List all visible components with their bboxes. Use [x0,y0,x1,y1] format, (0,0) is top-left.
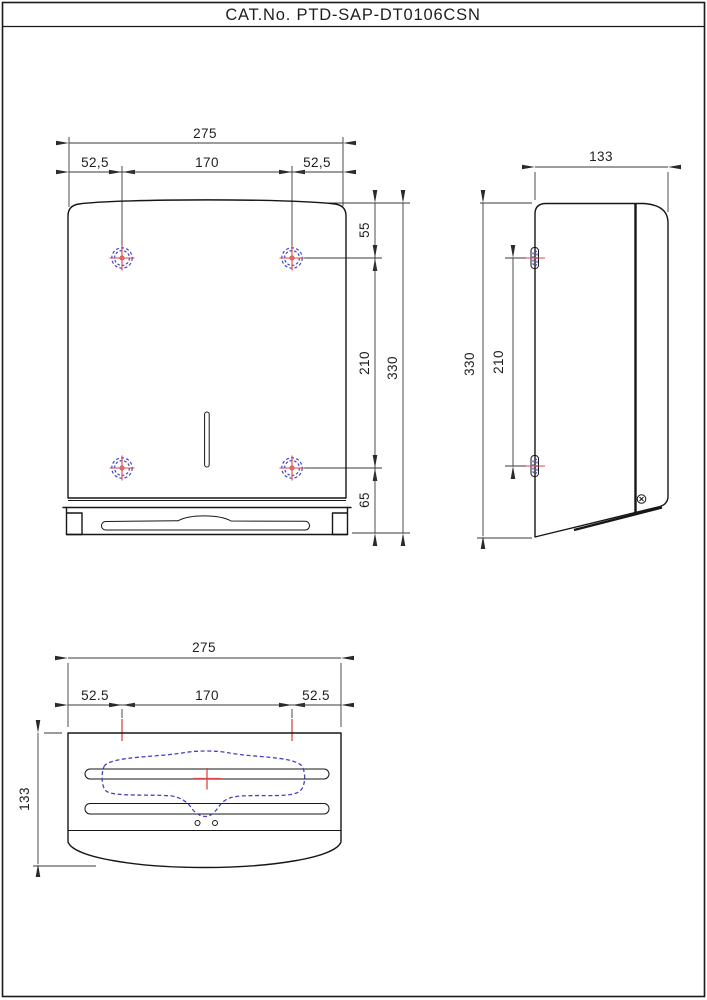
mounting-hole [280,246,305,271]
bottom-dim-depth: 133 [17,787,32,811]
bottom-dim-width-total: 275 [192,640,216,655]
side-mounting-slot [526,456,545,477]
mounting-hole [110,246,135,271]
front-dim-hole-to-hole: 210 [357,351,372,375]
front-dim-hole-to-bottom: 65 [357,492,372,508]
bottom-dim-offset-right: 52.5 [302,688,330,703]
front-dim-top-to-hole: 55 [357,222,372,238]
hidden-opening-outline [102,751,305,817]
drawing-title: CAT.No. PTD-SAP-DT0106CSN [225,6,480,24]
front-view: 275 52,5 170 52,5 55 210 65 330 [63,126,410,535]
front-dimension-lines [69,137,410,533]
drain-hole [213,821,218,826]
side-body-outline [526,204,668,538]
lock-cylinder [637,495,646,504]
front-body-outline [63,200,351,535]
front-dim-offset-right: 52,5 [303,155,331,170]
center-mark [193,768,221,790]
front-mounting-holes [110,246,305,481]
bottom-view: 275 52.5 170 52.5 133 [17,640,341,868]
side-dim-hole-to-hole: 210 [491,350,506,374]
front-dim-height-total: 330 [385,356,400,380]
bottom-dim-offset-left: 52.5 [81,688,109,703]
bottom-dim-hole-span: 170 [195,688,219,703]
mounting-hole [280,456,305,481]
side-dim-depth: 133 [589,149,613,164]
side-mounting-slot [526,248,545,269]
front-dim-width-total: 275 [193,126,217,141]
drawing-sheet: CAT.No. PTD-SAP-DT0106CSN 275 52 [0,0,707,1000]
front-dim-hole-span: 170 [195,155,219,170]
drain-hole [195,821,200,826]
technical-drawing-canvas: CAT.No. PTD-SAP-DT0106CSN 275 52 [0,0,707,1000]
bottom-body-outline [68,733,341,868]
side-dim-height-total: 330 [462,352,477,376]
mounting-hole [110,456,135,481]
front-dim-offset-left: 52,5 [81,155,109,170]
dispenser-slot [85,804,329,815]
side-view: 133 330 210 [462,149,668,538]
